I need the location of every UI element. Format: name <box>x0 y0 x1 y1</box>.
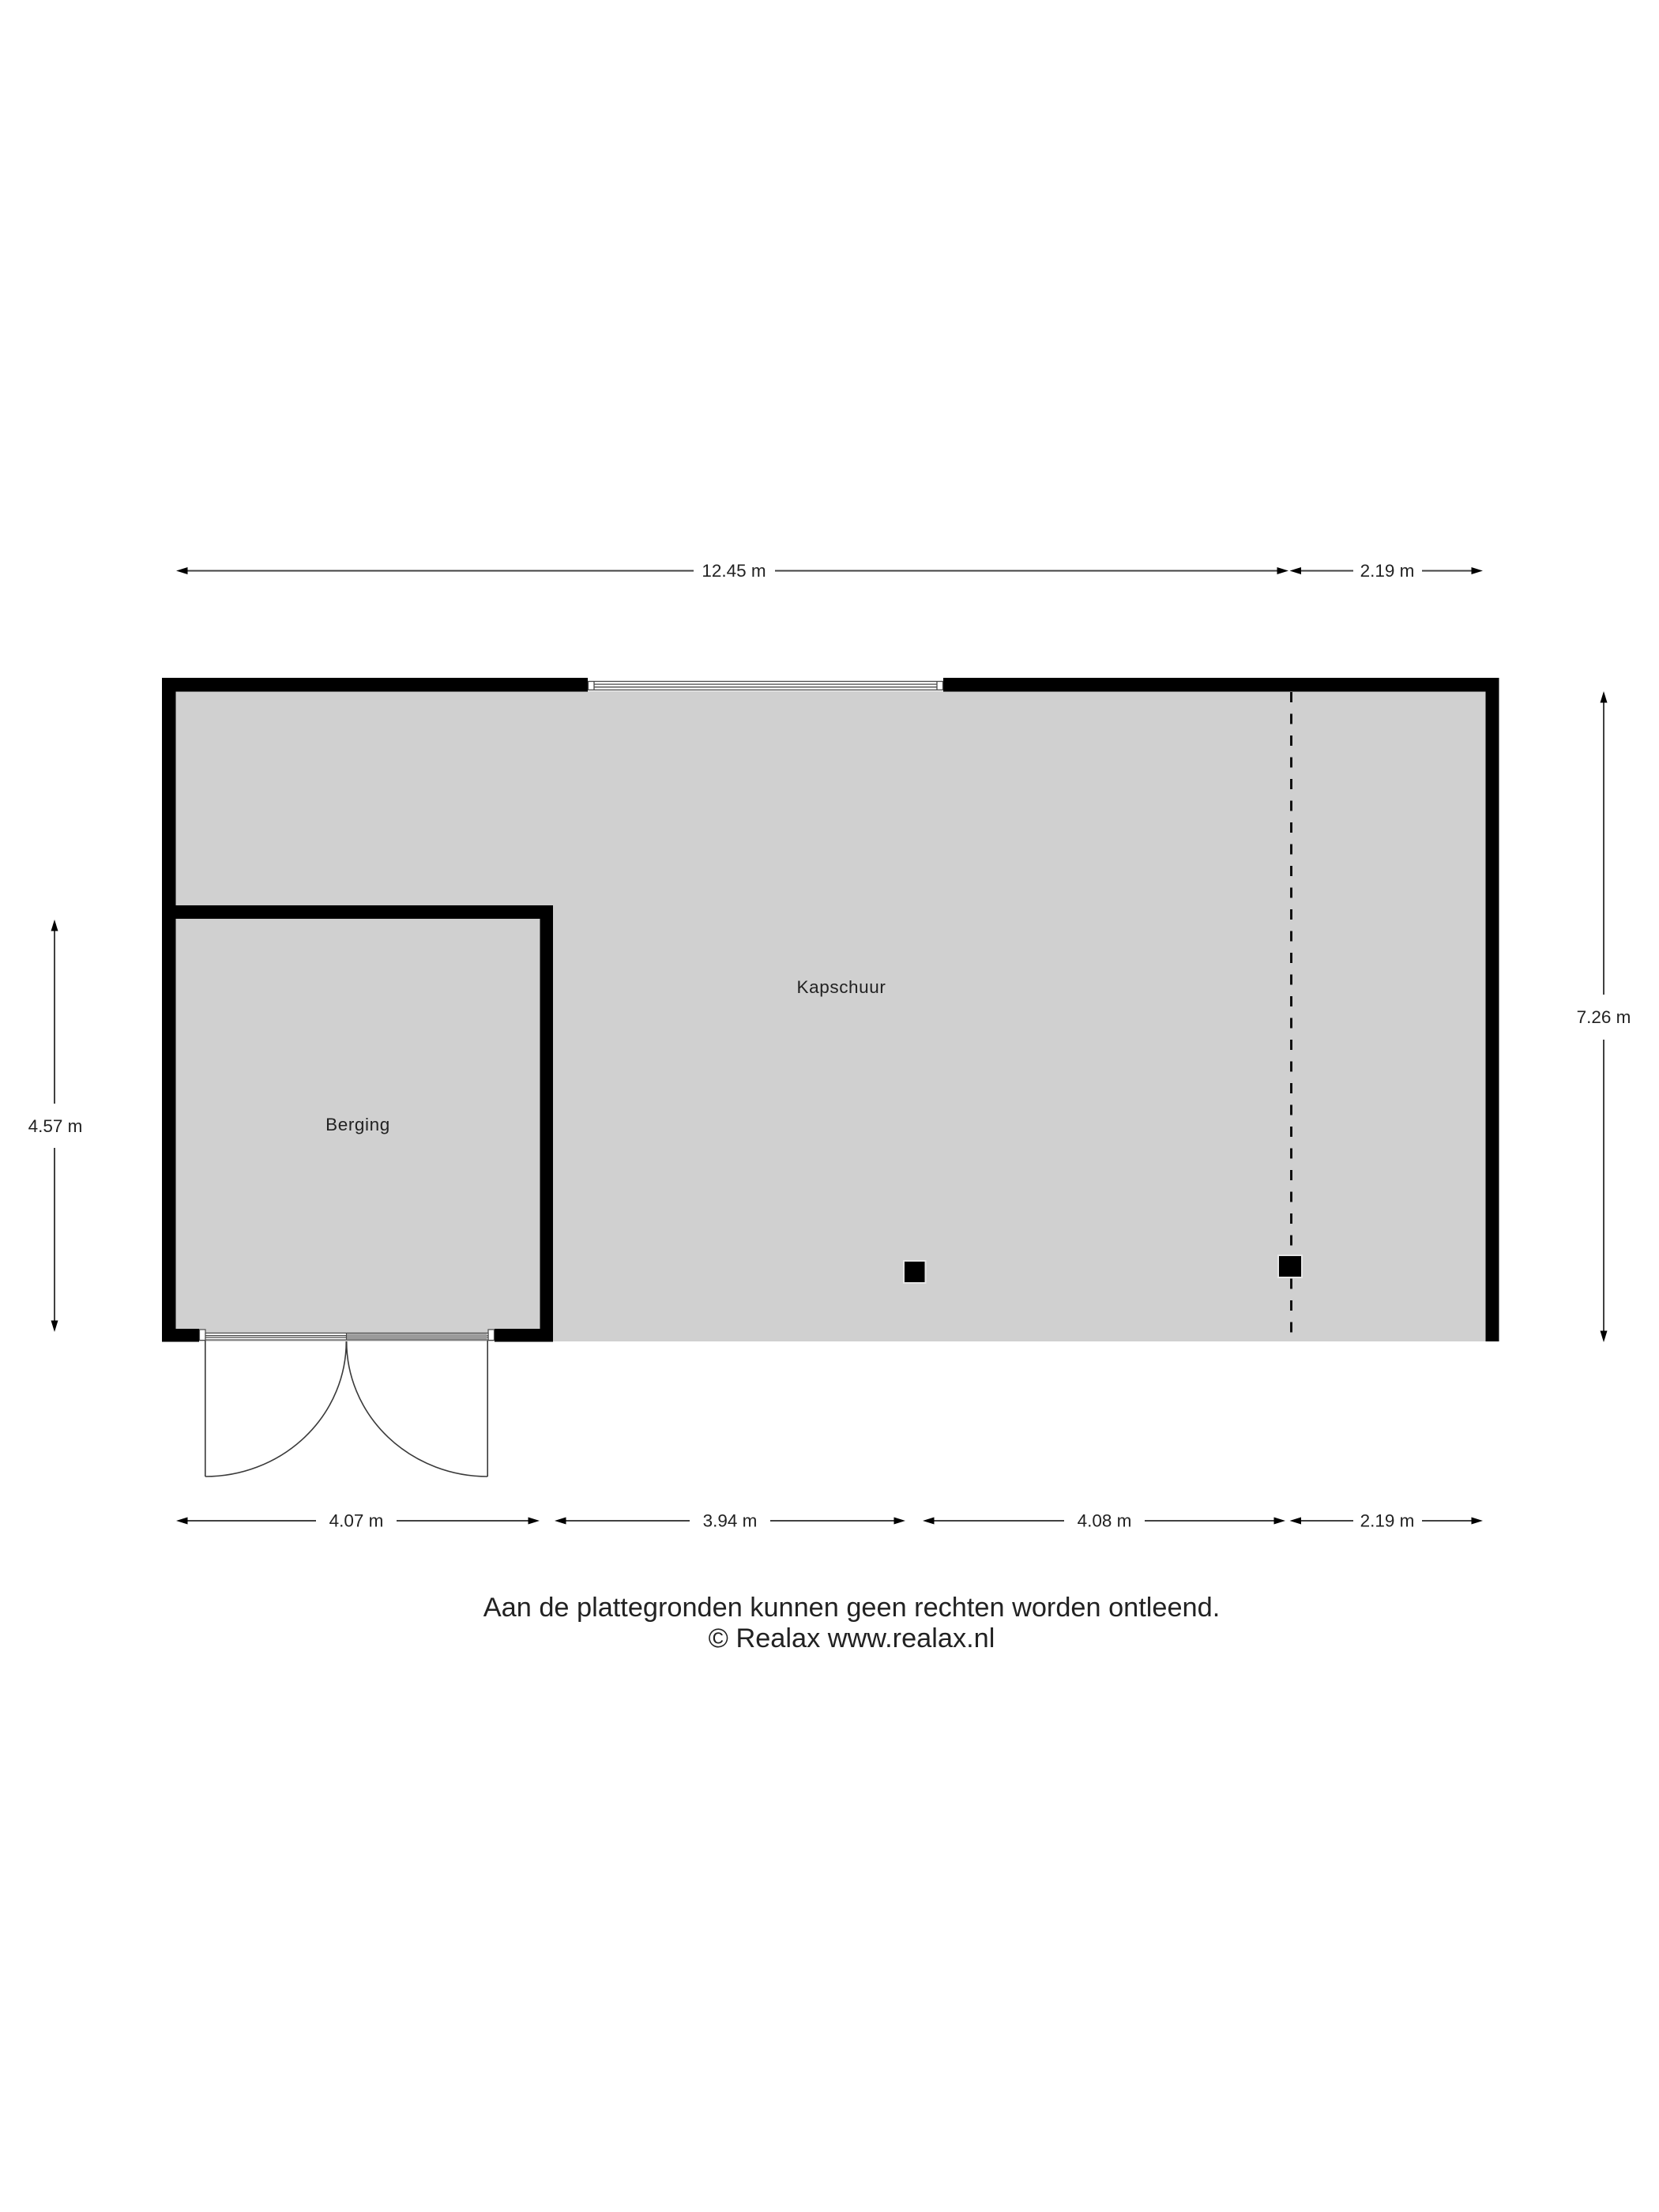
svg-text:Kapschuur: Kapschuur <box>797 977 886 997</box>
svg-text:7.26 m: 7.26 m <box>1577 1007 1631 1027</box>
svg-text:2.19 m: 2.19 m <box>1360 561 1415 581</box>
svg-text:2.19 m: 2.19 m <box>1360 1511 1415 1531</box>
svg-text:Berging: Berging <box>325 1115 390 1134</box>
svg-text:Aan de plattegronden kunnen ge: Aan de plattegronden kunnen geen rechten… <box>483 1593 1220 1623</box>
svg-text:4.57 m: 4.57 m <box>28 1116 83 1136</box>
svg-text:© Realax www.realax.nl: © Realax www.realax.nl <box>709 1623 995 1653</box>
svg-text:12.45 m: 12.45 m <box>702 561 766 581</box>
svg-text:3.94 m: 3.94 m <box>703 1511 758 1531</box>
svg-text:4.07 m: 4.07 m <box>329 1511 384 1531</box>
svg-text:4.08 m: 4.08 m <box>1078 1511 1132 1531</box>
